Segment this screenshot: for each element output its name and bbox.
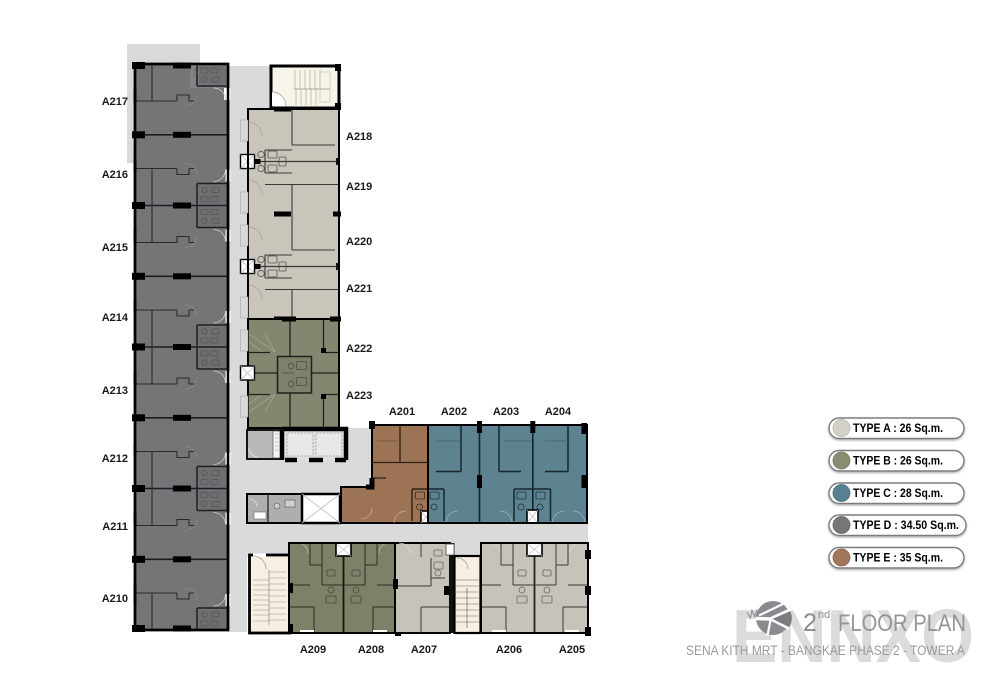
svg-text:A217: A217 (102, 96, 128, 108)
svg-text:A215: A215 (102, 242, 128, 254)
svg-text:SENA KITH MRT - BANGKAE PHASE: SENA KITH MRT - BANGKAE PHASE 2 - TOWER … (686, 643, 965, 658)
svg-text:nd: nd (818, 609, 830, 621)
svg-text:A218: A218 (346, 131, 372, 143)
svg-text:TYPE D : 34.50 Sq.m.: TYPE D : 34.50 Sq.m. (853, 520, 959, 532)
svg-text:A205: A205 (559, 644, 585, 656)
svg-text:A220: A220 (346, 236, 372, 248)
svg-text:TYPE C : 28 Sq.m.: TYPE C : 28 Sq.m. (853, 488, 943, 500)
svg-text:A213: A213 (102, 385, 128, 397)
svg-text:A223: A223 (346, 390, 372, 402)
svg-text:2: 2 (803, 609, 817, 637)
svg-text:A208: A208 (358, 644, 384, 656)
svg-text:TYPE E : 35 Sq.m.: TYPE E : 35 Sq.m. (853, 553, 943, 565)
svg-text:A211: A211 (102, 521, 128, 533)
svg-text:A209: A209 (300, 644, 326, 656)
svg-text:A210: A210 (102, 593, 128, 605)
svg-text:TYPE A : 26 Sq.m.: TYPE A : 26 Sq.m. (853, 423, 943, 435)
svg-text:A214: A214 (102, 312, 129, 324)
svg-text:TYPE B : 26 Sq.m.: TYPE B : 26 Sq.m. (853, 456, 943, 468)
svg-text:A221: A221 (346, 283, 372, 295)
svg-text:A212: A212 (102, 453, 128, 465)
svg-text:A207: A207 (411, 644, 437, 656)
svg-text:A204: A204 (545, 406, 572, 418)
svg-text:A219: A219 (346, 181, 372, 193)
svg-text:A203: A203 (493, 406, 519, 418)
svg-text:A202: A202 (441, 406, 467, 418)
svg-text:A206: A206 (496, 644, 522, 656)
svg-text:A222: A222 (346, 343, 372, 355)
svg-text:A216: A216 (102, 169, 128, 181)
svg-text:FLOOR PLAN: FLOOR PLAN (838, 610, 966, 637)
svg-text:A201: A201 (389, 406, 415, 418)
